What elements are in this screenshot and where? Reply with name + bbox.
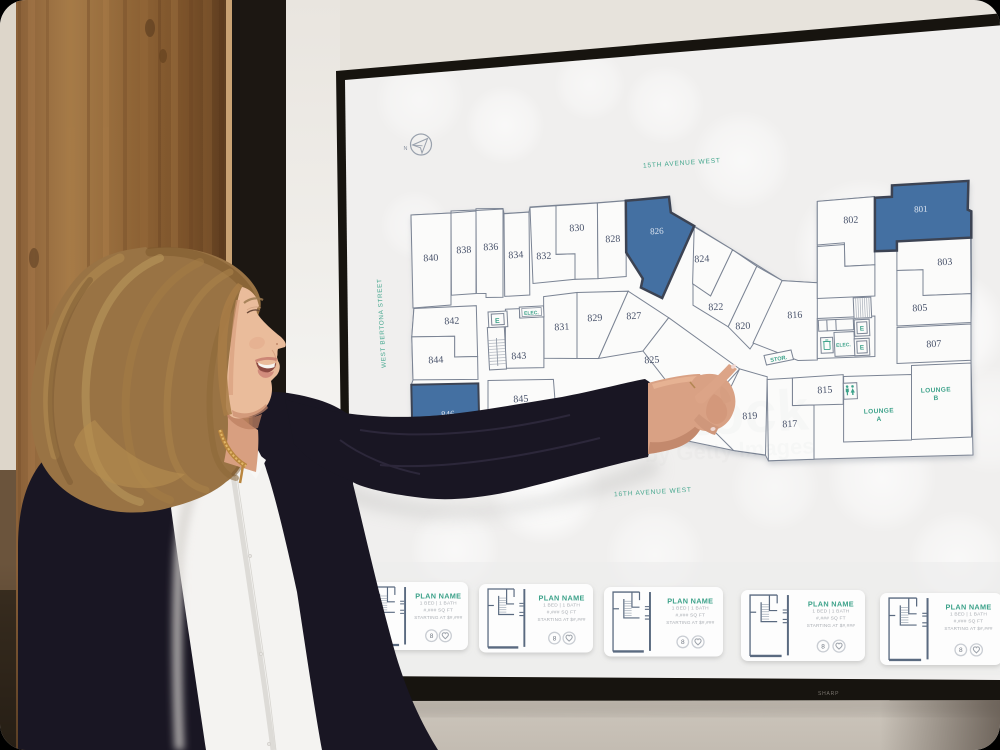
- svg-text:8: 8: [430, 633, 434, 640]
- svg-text:815: 815: [817, 385, 833, 397]
- svg-text:LOUNGE: LOUNGE: [921, 386, 952, 394]
- svg-text:ELEC.: ELEC.: [524, 310, 540, 317]
- svg-text:8: 8: [553, 635, 557, 642]
- svg-text:824: 824: [694, 254, 710, 266]
- svg-text:8: 8: [681, 639, 685, 646]
- svg-text:840: 840: [423, 253, 439, 265]
- svg-text:STARTING AT $#,###: STARTING AT $#,###: [807, 623, 855, 628]
- svg-text:801: 801: [914, 204, 928, 215]
- svg-text:LOUNGE: LOUNGE: [864, 407, 895, 415]
- svg-text:805: 805: [912, 303, 928, 315]
- svg-text:802: 802: [843, 215, 859, 227]
- svg-text:PLAN NAME: PLAN NAME: [415, 592, 461, 601]
- svg-text:803: 803: [937, 257, 953, 269]
- svg-text:834: 834: [508, 250, 524, 262]
- svg-text:PLAN NAME: PLAN NAME: [945, 603, 991, 612]
- svg-text:1 BED | 1 BATH: 1 BED | 1 BATH: [543, 603, 580, 609]
- svg-text:829: 829: [587, 313, 603, 325]
- svg-text:838: 838: [456, 245, 472, 257]
- svg-text:E: E: [495, 318, 500, 325]
- svg-text:825: 825: [644, 355, 660, 367]
- svg-text:ELEC.: ELEC.: [836, 342, 852, 349]
- svg-text:N: N: [404, 146, 408, 152]
- svg-text:822: 822: [708, 302, 724, 314]
- svg-text:SHARP: SHARP: [818, 691, 839, 697]
- svg-text:STARTING AT $#,###: STARTING AT $#,###: [944, 626, 992, 631]
- svg-text:827: 827: [626, 311, 642, 323]
- svg-text:832: 832: [536, 251, 552, 263]
- svg-text:A: A: [876, 416, 881, 423]
- svg-text:820: 820: [735, 321, 751, 333]
- svg-text:831: 831: [554, 322, 570, 334]
- svg-text:8: 8: [821, 643, 825, 650]
- svg-text:STARTING AT $#,###: STARTING AT $#,###: [537, 617, 585, 622]
- svg-text:1 BED | 1 BATH: 1 BED | 1 BATH: [672, 606, 709, 612]
- svg-text:842: 842: [444, 316, 460, 328]
- svg-text:1 BED | 1 BATH: 1 BED | 1 BATH: [950, 612, 987, 618]
- svg-text:#,### SQ FT: #,### SQ FT: [954, 619, 984, 625]
- svg-text:PLAN NAME: PLAN NAME: [667, 597, 713, 606]
- svg-text:843: 843: [511, 351, 527, 363]
- svg-text:#,### SQ FT: #,### SQ FT: [816, 616, 846, 622]
- svg-text:8: 8: [959, 647, 963, 654]
- svg-text:#,### SQ FT: #,### SQ FT: [675, 613, 705, 619]
- svg-text:B: B: [933, 395, 938, 402]
- svg-text:1 BED | 1 BATH: 1 BED | 1 BATH: [812, 609, 849, 615]
- svg-text:1 BED | 1 BATH: 1 BED | 1 BATH: [420, 601, 457, 607]
- svg-text:#,### SQ FT: #,### SQ FT: [423, 608, 453, 614]
- svg-text:836: 836: [483, 242, 499, 254]
- svg-text:807: 807: [926, 339, 942, 351]
- svg-text:STARTING AT $#,###: STARTING AT $#,###: [414, 615, 462, 620]
- svg-text:844: 844: [428, 355, 444, 367]
- svg-text:STARTING AT $#,###: STARTING AT $#,###: [666, 620, 714, 625]
- svg-text:828: 828: [605, 234, 621, 246]
- svg-text:816: 816: [787, 310, 803, 322]
- svg-text:#,### SQ FT: #,### SQ FT: [547, 610, 577, 616]
- svg-text:PLAN NAME: PLAN NAME: [539, 594, 585, 603]
- svg-text:826: 826: [650, 226, 665, 237]
- svg-text:830: 830: [569, 223, 585, 235]
- svg-text:PLAN NAME: PLAN NAME: [808, 600, 854, 609]
